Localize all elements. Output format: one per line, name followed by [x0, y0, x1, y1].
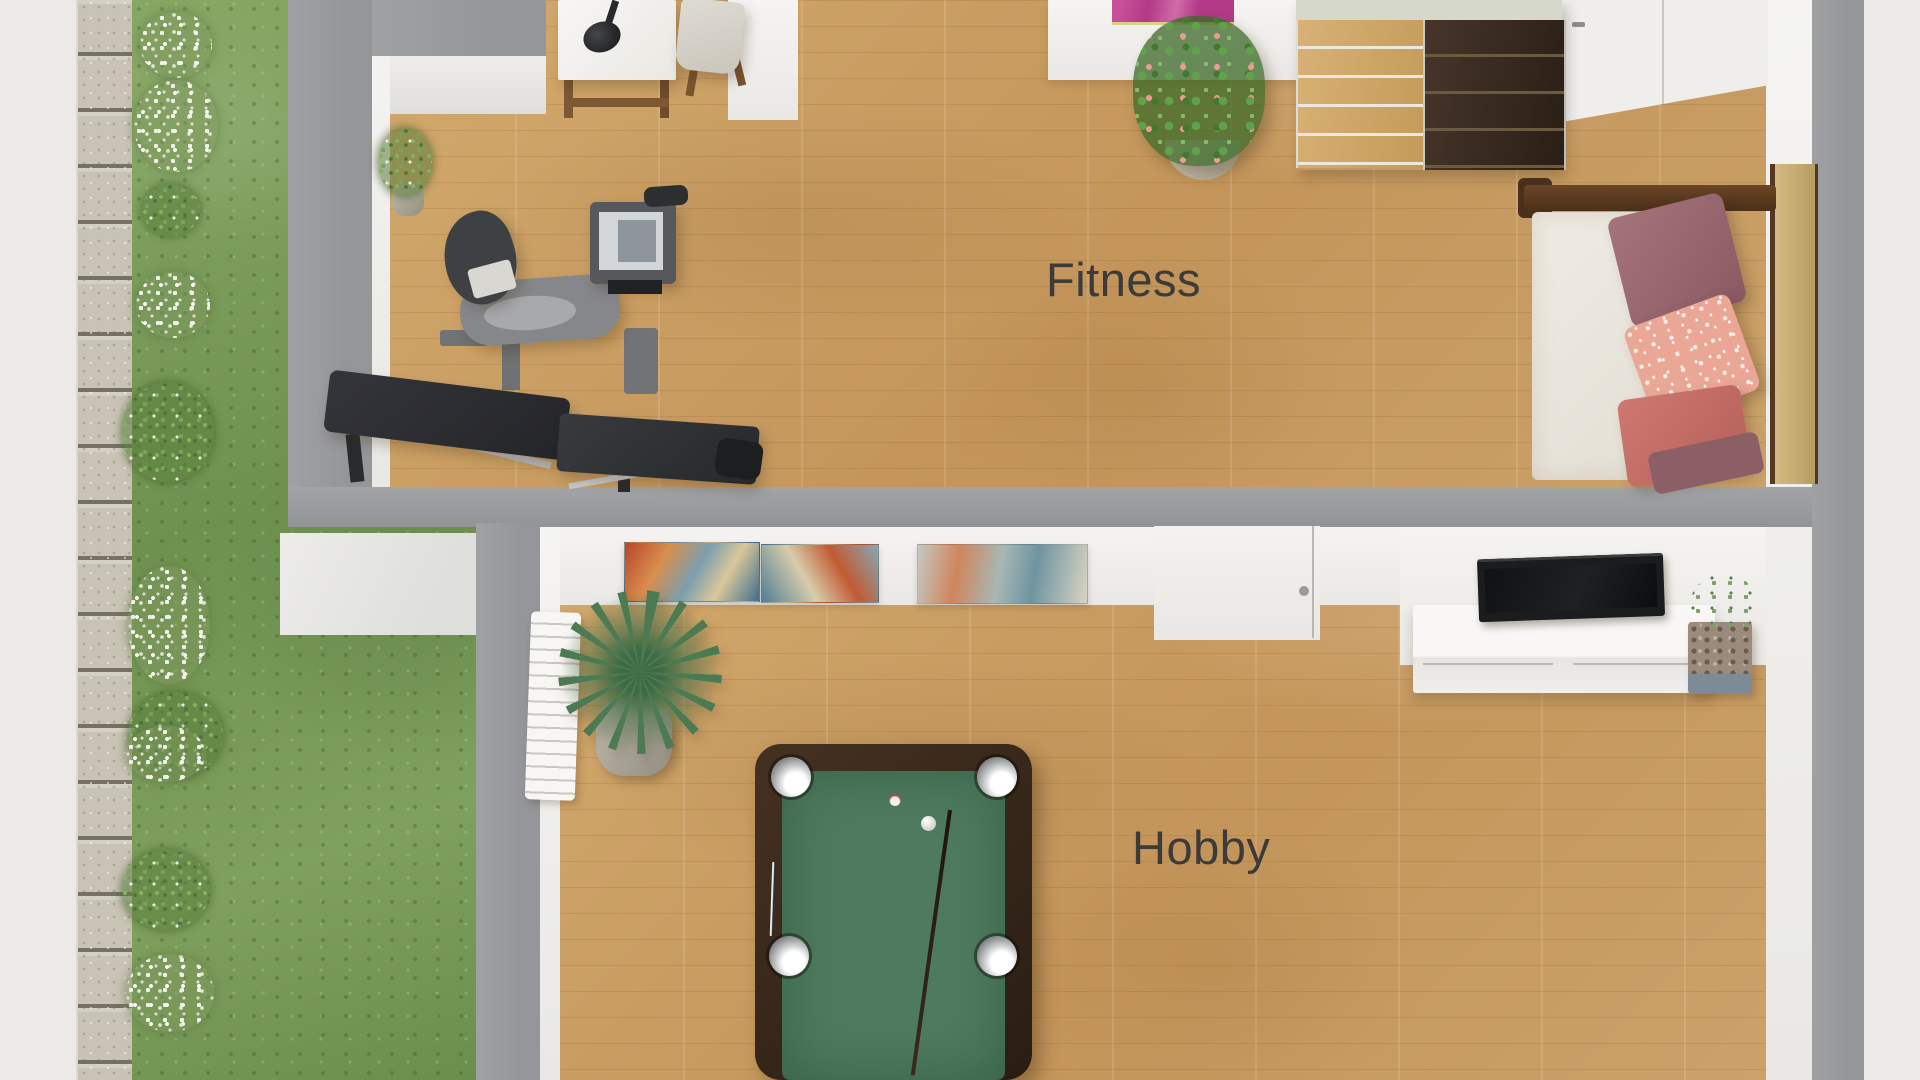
terrace-slab	[280, 533, 478, 635]
yucca-plant	[558, 590, 722, 754]
pool-table	[755, 744, 1032, 1080]
flower-shrub	[134, 80, 218, 172]
stone-path	[76, 0, 135, 1080]
pool-pocket	[977, 936, 1017, 976]
cue-ball	[921, 816, 936, 831]
bike-console	[590, 202, 676, 284]
pot-base	[1688, 674, 1752, 694]
drawer-seam	[1573, 663, 1705, 665]
alcove-wall	[372, 0, 546, 56]
pool-cue-on-rail	[770, 862, 777, 936]
door-handle	[1572, 22, 1585, 27]
desk-leg	[564, 76, 573, 118]
flower-shrub	[128, 566, 210, 684]
bike-console-display	[618, 220, 656, 262]
hobby-left-wall	[476, 523, 540, 1080]
desk-leg	[660, 76, 669, 118]
door-handle	[1299, 586, 1309, 596]
flower-shrub	[126, 726, 206, 782]
object-ball	[889, 794, 901, 806]
dresser	[1296, 0, 1562, 170]
bench-head-pad	[714, 437, 765, 481]
fitness-room-label: Fitness	[1046, 256, 1201, 303]
pool-pocket	[769, 936, 809, 976]
door-seam	[1312, 526, 1314, 638]
alcove-wall-face	[390, 56, 546, 114]
bike-handle-pad	[643, 184, 688, 207]
green-shrub	[122, 850, 210, 930]
dresser-drawers-light	[1296, 20, 1425, 168]
wall-tv	[1477, 553, 1665, 622]
hobby-left-inner-wall	[540, 523, 560, 1080]
tv-screen	[1484, 563, 1657, 613]
potted-plant	[378, 128, 432, 196]
pool-pocket	[771, 757, 811, 797]
hobby-room-label: Hobby	[1132, 824, 1270, 871]
drawer-seam	[1423, 663, 1553, 665]
flowering-plant	[1133, 16, 1265, 166]
flower-shrub	[140, 12, 212, 78]
desk-crossbar	[564, 98, 669, 107]
daybed	[1518, 152, 1810, 484]
chair	[674, 0, 745, 75]
bench-leg	[346, 433, 365, 482]
bike-console-slot	[608, 280, 662, 294]
green-shrub	[142, 184, 200, 236]
dresser-drawers-dark	[1423, 20, 1566, 170]
abstract-art-2	[761, 544, 879, 603]
floor-plan-scene: Fitness Hobby	[0, 0, 1920, 1080]
door-seam	[1662, 0, 1664, 122]
pool-felt	[782, 771, 1005, 1080]
exercise-bike	[432, 182, 692, 397]
abstract-art-3	[917, 544, 1088, 604]
dresser-top	[1296, 0, 1562, 20]
small-plant-sprigs	[1690, 574, 1758, 636]
daybed-rail	[1524, 185, 1776, 211]
daybed-back-panel	[1770, 164, 1818, 484]
right-wall	[1812, 0, 1864, 1080]
green-shrub	[122, 382, 214, 482]
flower-shrub	[126, 954, 214, 1032]
flower-shrub	[136, 272, 210, 338]
pool-pocket	[977, 757, 1017, 797]
interior-door-hobby	[1154, 526, 1320, 640]
weight-bench	[318, 384, 766, 494]
